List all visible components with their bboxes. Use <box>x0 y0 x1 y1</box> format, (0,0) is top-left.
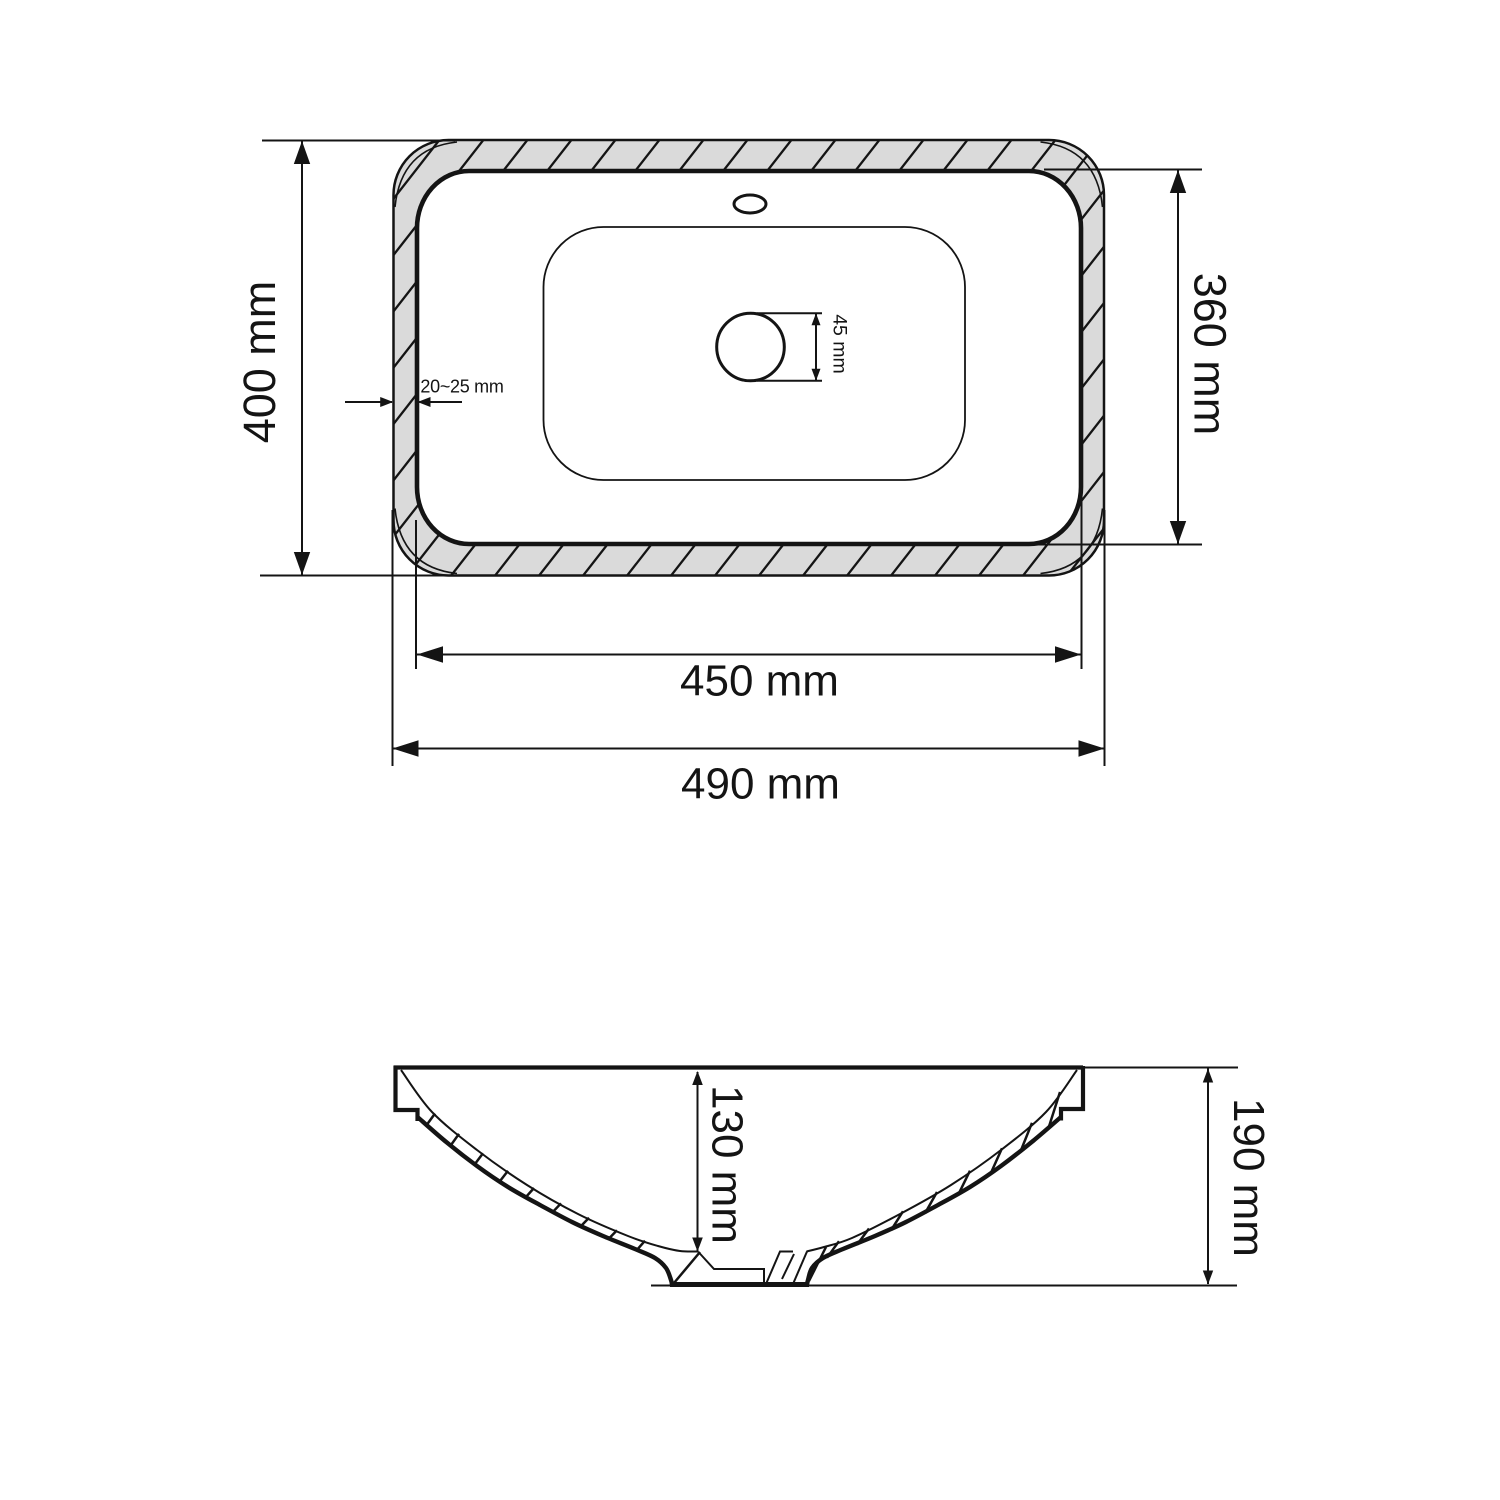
svg-text:45 mm: 45 mm <box>829 314 851 374</box>
svg-text:190 mm: 190 mm <box>1224 1098 1273 1257</box>
svg-text:130 mm: 130 mm <box>703 1085 752 1244</box>
svg-text:20~25 mm: 20~25 mm <box>420 377 503 397</box>
svg-text:400 mm: 400 mm <box>234 281 285 444</box>
svg-text:360 mm: 360 mm <box>1185 273 1236 436</box>
svg-text:450 mm: 450 mm <box>680 657 839 706</box>
svg-text:490 mm: 490 mm <box>681 760 840 809</box>
